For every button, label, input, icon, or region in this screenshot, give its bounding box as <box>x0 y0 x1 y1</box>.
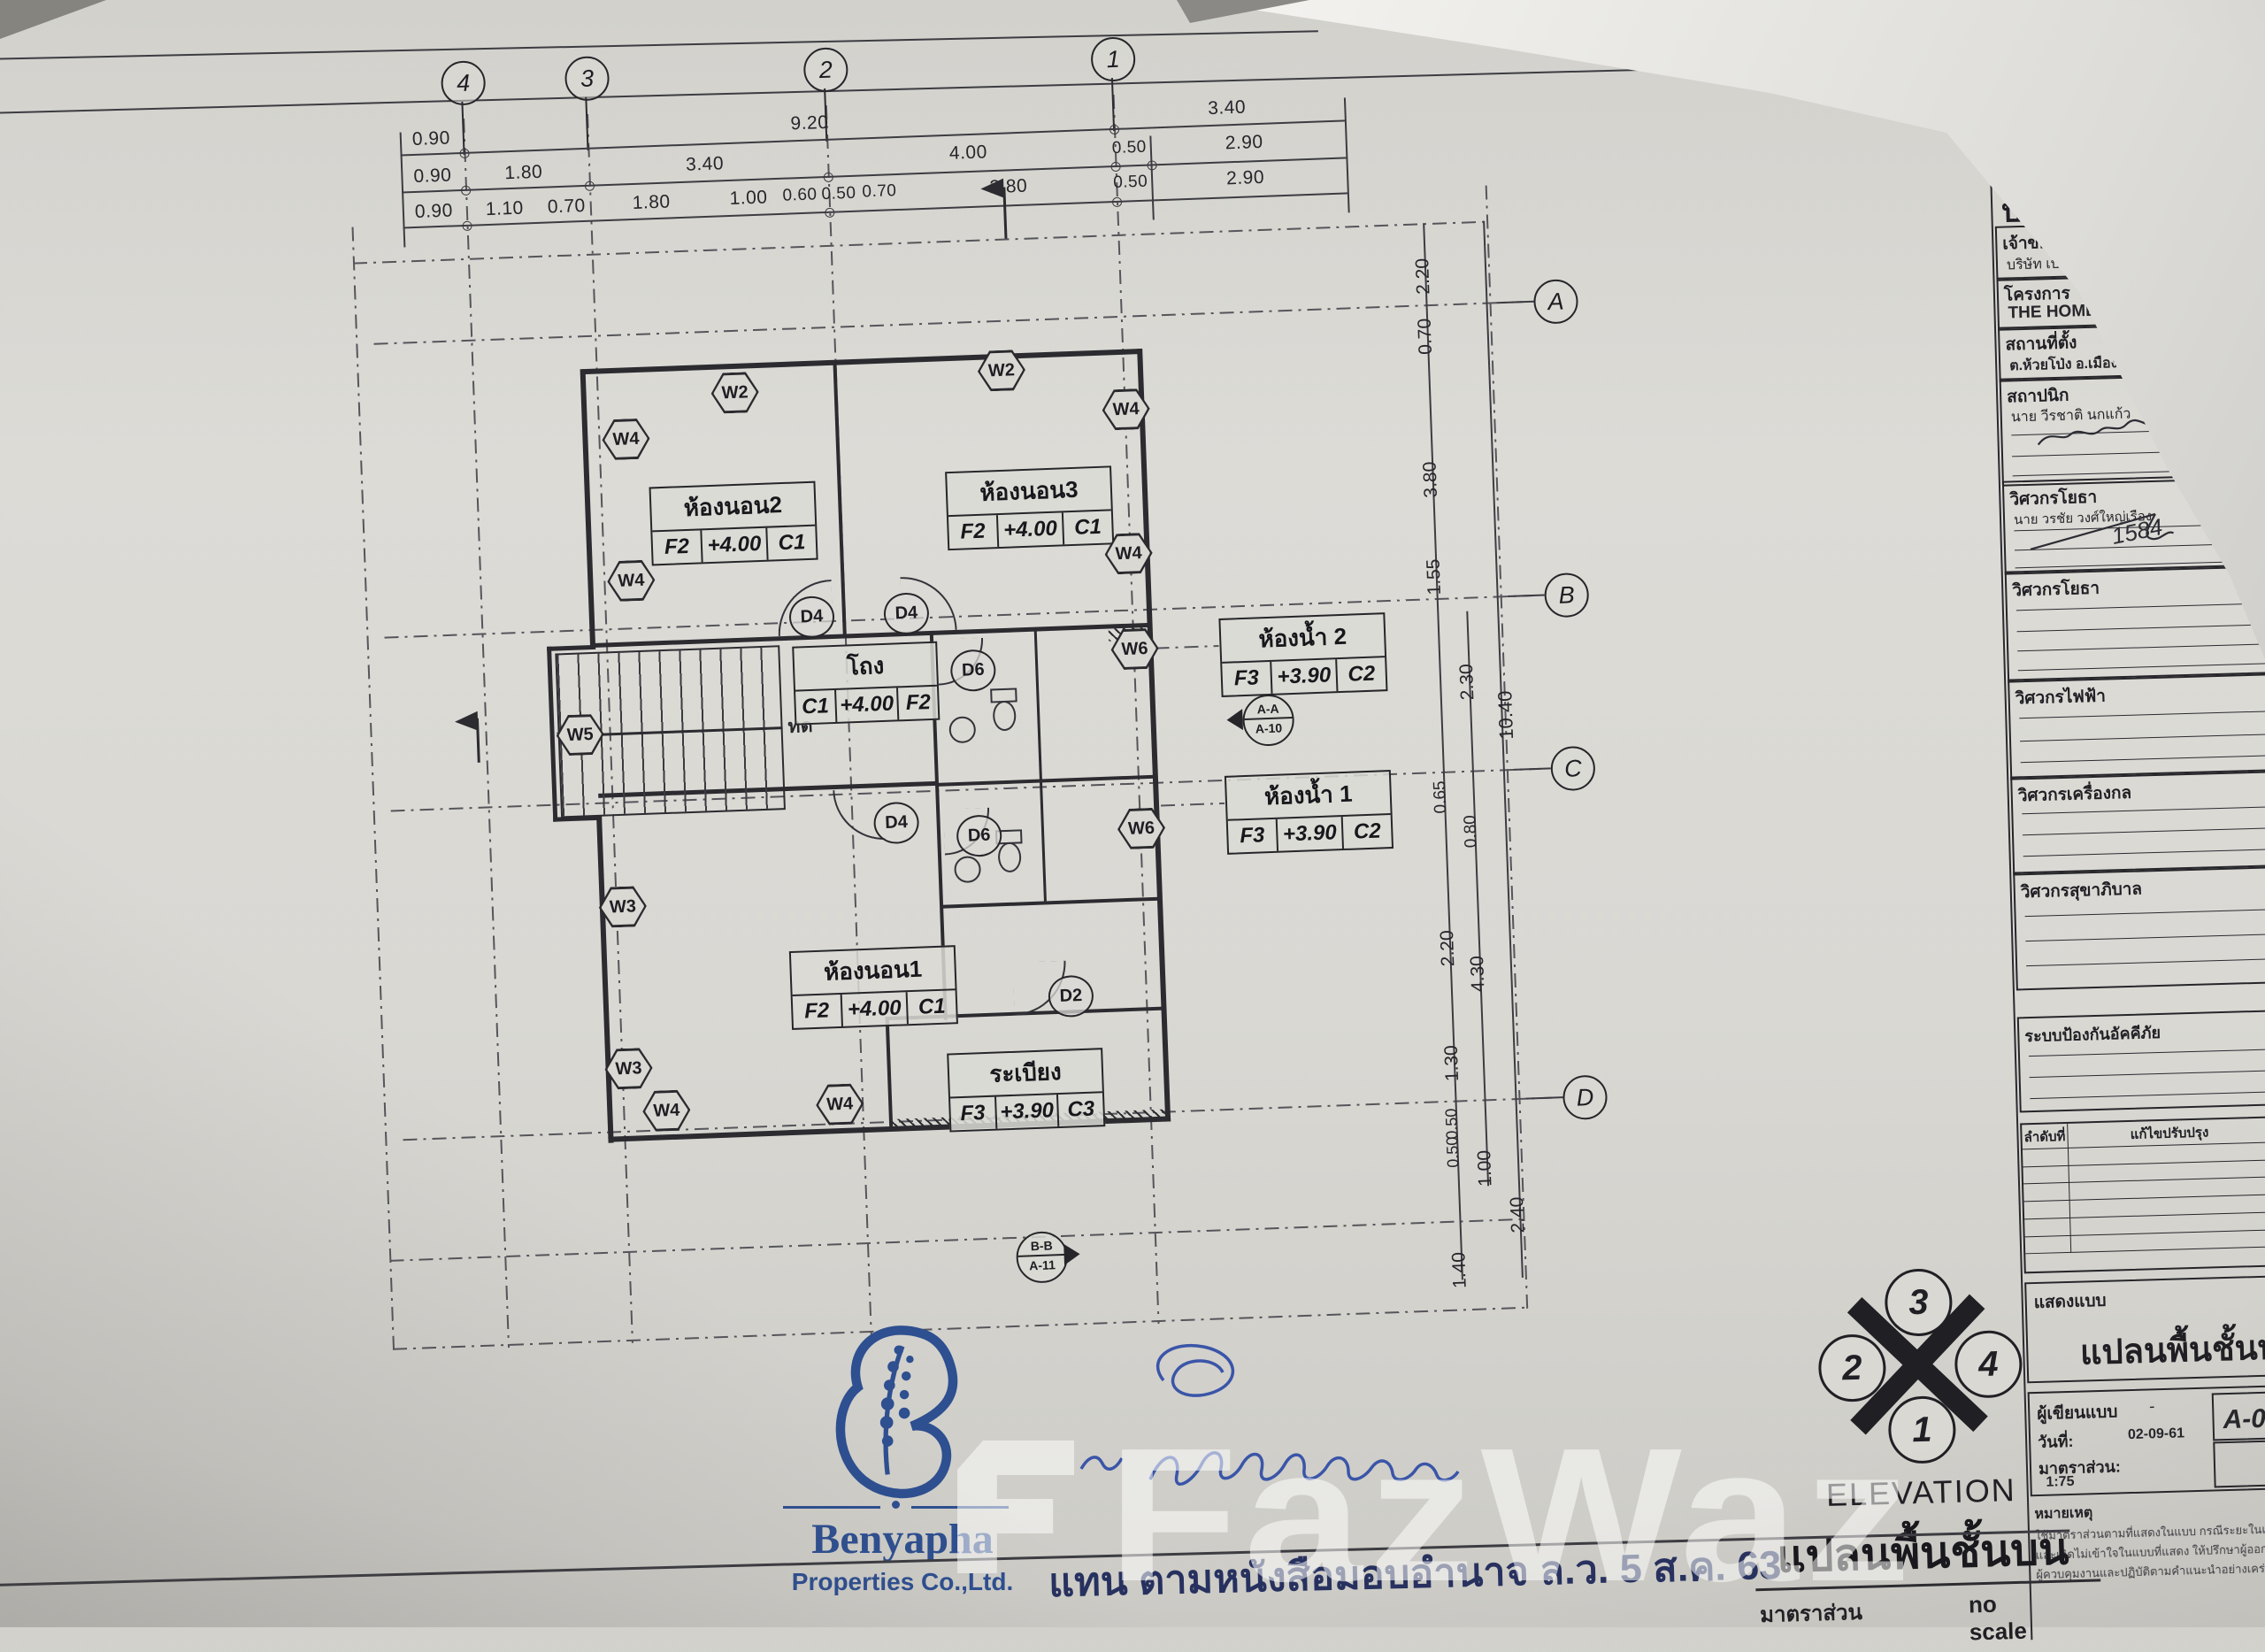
flag-icon <box>980 179 1004 199</box>
bubble-stem <box>1508 595 1545 598</box>
grid-bubble-A: A <box>1533 279 1579 325</box>
section-marker-aa: A-A A-10 <box>1242 694 1295 747</box>
mechanical-row: วิศวกรเครื่องกล <box>2010 767 2265 875</box>
room-label-bedroom1: ห้องนอน1 F2+4.00C1 <box>789 945 958 1030</box>
wall <box>580 369 596 649</box>
grid-bubble-1: 1 <box>1090 36 1136 82</box>
leader-line <box>1156 645 1219 649</box>
sheet-title: แปลนพื้นชั้นบน <box>2079 1319 2265 1379</box>
room-label-bedroom2: ห้องนอน2 F2+4.00C1 <box>649 481 818 566</box>
revision-table: ลำดับที่ แก้ไขปรับปรุง วันที่ <box>2020 1114 2265 1273</box>
dimension-label: 0.70 <box>862 181 897 202</box>
room-label-bath1: ห้องน้ำ 1 F3+3.90C2 <box>1225 770 1394 855</box>
window-tag-w2: W2 <box>977 350 1026 392</box>
section-arrow <box>1063 1243 1080 1265</box>
window-tag-w4: W4 <box>1104 533 1154 575</box>
dimension-label: 2.90 <box>1225 132 1263 155</box>
boundary-line <box>352 227 395 1352</box>
section-arrow <box>1226 709 1243 731</box>
dimension-label: 0.50 <box>821 184 856 204</box>
dim-tick <box>825 208 834 218</box>
window-tag-w4: W4 <box>1102 388 1151 431</box>
wall <box>886 1017 894 1130</box>
flag-icon <box>455 711 479 732</box>
fire-row: ระบบป้องกันอัคคีภัย <box>2017 1008 2265 1112</box>
window-tag-w4: W4 <box>607 559 656 602</box>
dimension-label: 1.30 <box>1441 1045 1463 1082</box>
basin <box>954 856 981 883</box>
engineer-signature <box>2023 500 2219 558</box>
wall <box>547 645 595 651</box>
dimension-label: 0.90 <box>413 165 452 188</box>
dimension-label: 0.70 <box>1415 318 1437 355</box>
civil2-row: วิศวกรโยธา <box>2005 562 2265 682</box>
compass-circle-4: 4 <box>1954 1330 2023 1399</box>
dimension-label: 2.20 <box>1412 257 1434 295</box>
wall <box>1034 631 1047 902</box>
room-label-hall: โถง C1+4.00F2 <box>792 642 940 726</box>
door-tag-d6: D6 <box>949 649 996 692</box>
wall <box>937 775 1155 787</box>
grid-bubble-3: 3 <box>564 56 610 102</box>
grid-line <box>373 301 1523 344</box>
wall <box>941 897 1159 909</box>
dim-line <box>1483 221 1523 1278</box>
shows-row: แสดงแบบ แปลนพื้นชั้นบน <box>2024 1273 2265 1383</box>
dimension-label: 3.40 <box>686 153 725 176</box>
dimension-label: 0.65 <box>1431 780 1451 814</box>
grid-bubble-D: D <box>1562 1074 1609 1120</box>
dim-tick <box>1110 162 1120 172</box>
dim-tick <box>585 181 595 191</box>
dimension-label: 1.00 <box>1474 1150 1496 1187</box>
drafter-row: ผู้เขียนแบบ - วันที่: 02-09-61 มาตราส่วน… <box>2028 1383 2265 1496</box>
photo-of-floor-plan-sheet: { "grid": {"cols": ["4","3","2","1"], "r… <box>0 0 2265 1627</box>
wall <box>596 816 614 1143</box>
dimension-label: 1.55 <box>1424 558 1446 595</box>
boundary-line <box>1486 186 1528 1310</box>
wall <box>1137 349 1171 1122</box>
electrical-row: วิศวกรไฟฟ้า <box>2008 670 2265 780</box>
room-label-bedroom3: ห้องนอน3 F2+4.00C1 <box>945 465 1114 550</box>
basin <box>948 716 976 743</box>
title-block: แบบ แบบ บ้านพัก เจ้าของ บริษัท เบญจภา พร… <box>1987 66 2265 1640</box>
dimension-label: 1.00 <box>729 187 768 210</box>
grid-bubble-B: B <box>1544 572 1590 619</box>
dimension-label: 0.50 <box>1443 1136 1463 1168</box>
logo-dot <box>892 1501 900 1509</box>
dimension-label: 1.80 <box>632 191 671 214</box>
dimension-label: 0.70 <box>547 196 586 219</box>
table-corner <box>0 0 106 39</box>
bubble-stem <box>1514 767 1551 771</box>
dim-ext <box>1149 135 1154 219</box>
toilet-bowl <box>993 701 1017 732</box>
dimension-label: 10.40 <box>1493 690 1518 740</box>
dimension-label: 0.80 <box>1461 815 1481 849</box>
window-tag-w6: W6 <box>1117 807 1166 849</box>
window-tag-w6: W6 <box>1110 628 1160 671</box>
dimension-label: 4.00 <box>948 142 987 165</box>
dimension-label: 3.40 <box>1208 97 1247 120</box>
dimension-label: 0.60 <box>782 185 818 205</box>
dim-tick <box>1147 160 1156 170</box>
window-tag-w4: W4 <box>815 1083 864 1126</box>
door-tag-d4: D4 <box>873 802 920 845</box>
dimension-label: 1.10 <box>485 198 524 221</box>
dimension-label: 0.50 <box>1113 173 1148 193</box>
toilet-bowl <box>997 841 1021 872</box>
bubble-stem <box>1525 1096 1562 1100</box>
titleblock-tab: แบบ <box>1997 109 2030 136</box>
window-tag-w3: W3 <box>598 886 648 928</box>
dim-tick <box>462 221 472 231</box>
scale-value: no scale <box>1969 1590 2032 1647</box>
logo-rule <box>783 1506 880 1509</box>
window-tag-w5: W5 <box>556 714 605 757</box>
boundary-line <box>389 1218 1523 1262</box>
dim-tick <box>1109 125 1119 134</box>
window-tag-w4: W4 <box>642 1089 692 1132</box>
dim-tick <box>459 149 469 158</box>
dimension-label: 0.90 <box>415 200 454 223</box>
architect-signature <box>2029 407 2189 456</box>
window-tag-w2: W2 <box>710 372 760 414</box>
wall <box>833 363 846 635</box>
sanitary-row: วิศวกรสุขาภิบาล <box>2013 863 2265 990</box>
dimension-label: 4.30 <box>1467 956 1489 993</box>
window-tag-w3: W3 <box>604 1048 654 1090</box>
dimension-label: 2.40 <box>1507 1196 1529 1233</box>
dimension-label: 2.30 <box>1456 664 1478 701</box>
sheet-total-box: รวม <box>2213 1438 2265 1487</box>
dim-tick <box>824 173 833 182</box>
bubble-stem <box>1496 301 1533 304</box>
boundary-line <box>353 221 1486 265</box>
dimension-label: 0.50 <box>1111 138 1147 158</box>
section-marker-bb: B-B A-11 <box>1016 1231 1069 1284</box>
dimension-label: 0.90 <box>412 127 451 150</box>
dim-line <box>401 119 1346 156</box>
door-tag-d6: D6 <box>956 814 1002 857</box>
floor-plan: 4 3 2 1 A B C D 0.90 9.20 3.40 0.90 1.80… <box>310 0 1641 1387</box>
dimension-label: 1.40 <box>1448 1252 1470 1289</box>
dimension-label: 3.80 <box>1419 461 1441 498</box>
dim-ext <box>1344 97 1349 212</box>
dimension-label: 0.50 <box>1442 1108 1462 1140</box>
grid-bubble-C: C <box>1550 746 1596 792</box>
dim-tick <box>461 186 471 196</box>
window-tag-w4: W4 <box>602 418 651 460</box>
dimension-label: 9.20 <box>790 112 829 135</box>
dimension-label: 2.90 <box>1226 167 1265 190</box>
grid-line <box>463 119 510 1348</box>
architect-row: สถาปนิก นาย วีรชาติ นกแก้ว ภ-สถ. 21183 <box>2000 369 2265 486</box>
watermark-text: FazWaz <box>1108 1405 1916 1625</box>
civil-engineer-row: วิศวกรโยธา นาย วรชัย วงศ์ใหญ่เรือง กย 19… <box>2002 472 2265 574</box>
sheet-number-box: แผ่นที่ A-0 <box>2212 1389 2265 1441</box>
room-label-balcony: ระเบียง F3+3.90C3 <box>947 1048 1105 1132</box>
dimension-label: 1.80 <box>504 162 543 185</box>
room-label-bath2: ห้องน้ำ 2 F3+3.90C2 <box>1218 612 1387 697</box>
wall <box>583 349 1142 374</box>
leader-line <box>1161 803 1225 806</box>
dimension-label: 2.20 <box>1437 930 1459 967</box>
grid-bubble-2: 2 <box>802 47 848 93</box>
grid-bubble-4: 4 <box>441 60 487 106</box>
dim-ext <box>400 133 405 248</box>
dim-tick <box>1112 197 1122 207</box>
